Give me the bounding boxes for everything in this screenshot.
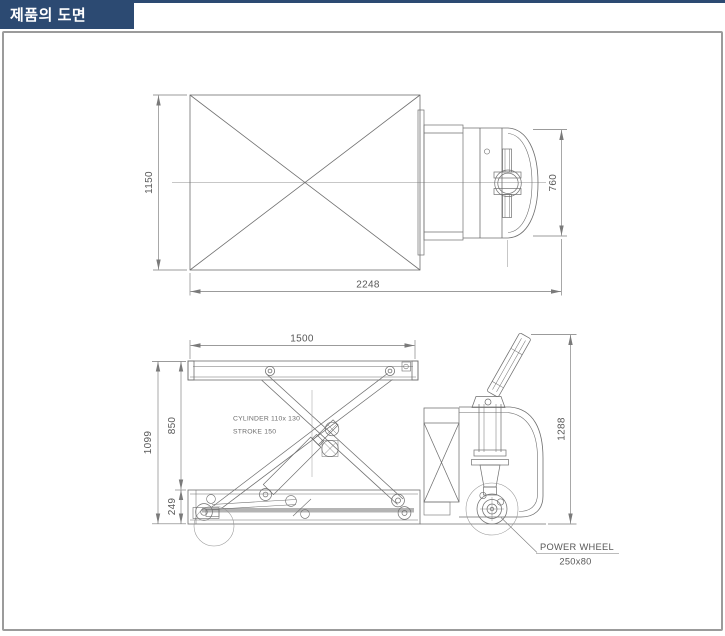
screw-detail xyxy=(484,149,489,154)
side-view-dimensions xyxy=(152,335,619,554)
power-unit-plan xyxy=(463,128,538,238)
power-wheel-label: POWER WHEEL xyxy=(540,542,614,552)
technical-drawing: 1150 760 2248 xyxy=(0,0,725,636)
platform-side xyxy=(188,361,418,380)
dim-handle-height-1288: 1288 xyxy=(557,417,568,441)
dim-body-width-760: 760 xyxy=(548,174,559,192)
housing-inner xyxy=(459,413,538,512)
dim-lowered-height-249: 249 xyxy=(167,498,178,516)
dim-platform-length-1500: 1500 xyxy=(290,334,314,345)
wheel-plan xyxy=(494,149,521,267)
dim-platform-width-1150: 1150 xyxy=(144,171,155,194)
top-view xyxy=(172,95,546,270)
power-wheel xyxy=(466,483,518,535)
cylinder-note-line2: STROKE 150 xyxy=(233,429,276,436)
side-view xyxy=(188,333,546,546)
rounded-cap-outer xyxy=(508,128,538,238)
cylinder-note-line1: CYLINDER 110x 130 xyxy=(233,416,300,423)
dim-overall-length-2248: 2248 xyxy=(356,280,380,291)
dim-raised-height-850: 850 xyxy=(167,417,178,435)
power-wheel-size: 250x80 xyxy=(559,557,591,567)
power-unit-side xyxy=(459,333,543,535)
battery-box xyxy=(424,408,459,515)
base-rail xyxy=(202,508,414,513)
tiller-handle xyxy=(472,333,531,408)
dim-overall-height-1099: 1099 xyxy=(143,431,154,455)
base-frame xyxy=(188,490,546,546)
steering-column xyxy=(472,404,509,495)
